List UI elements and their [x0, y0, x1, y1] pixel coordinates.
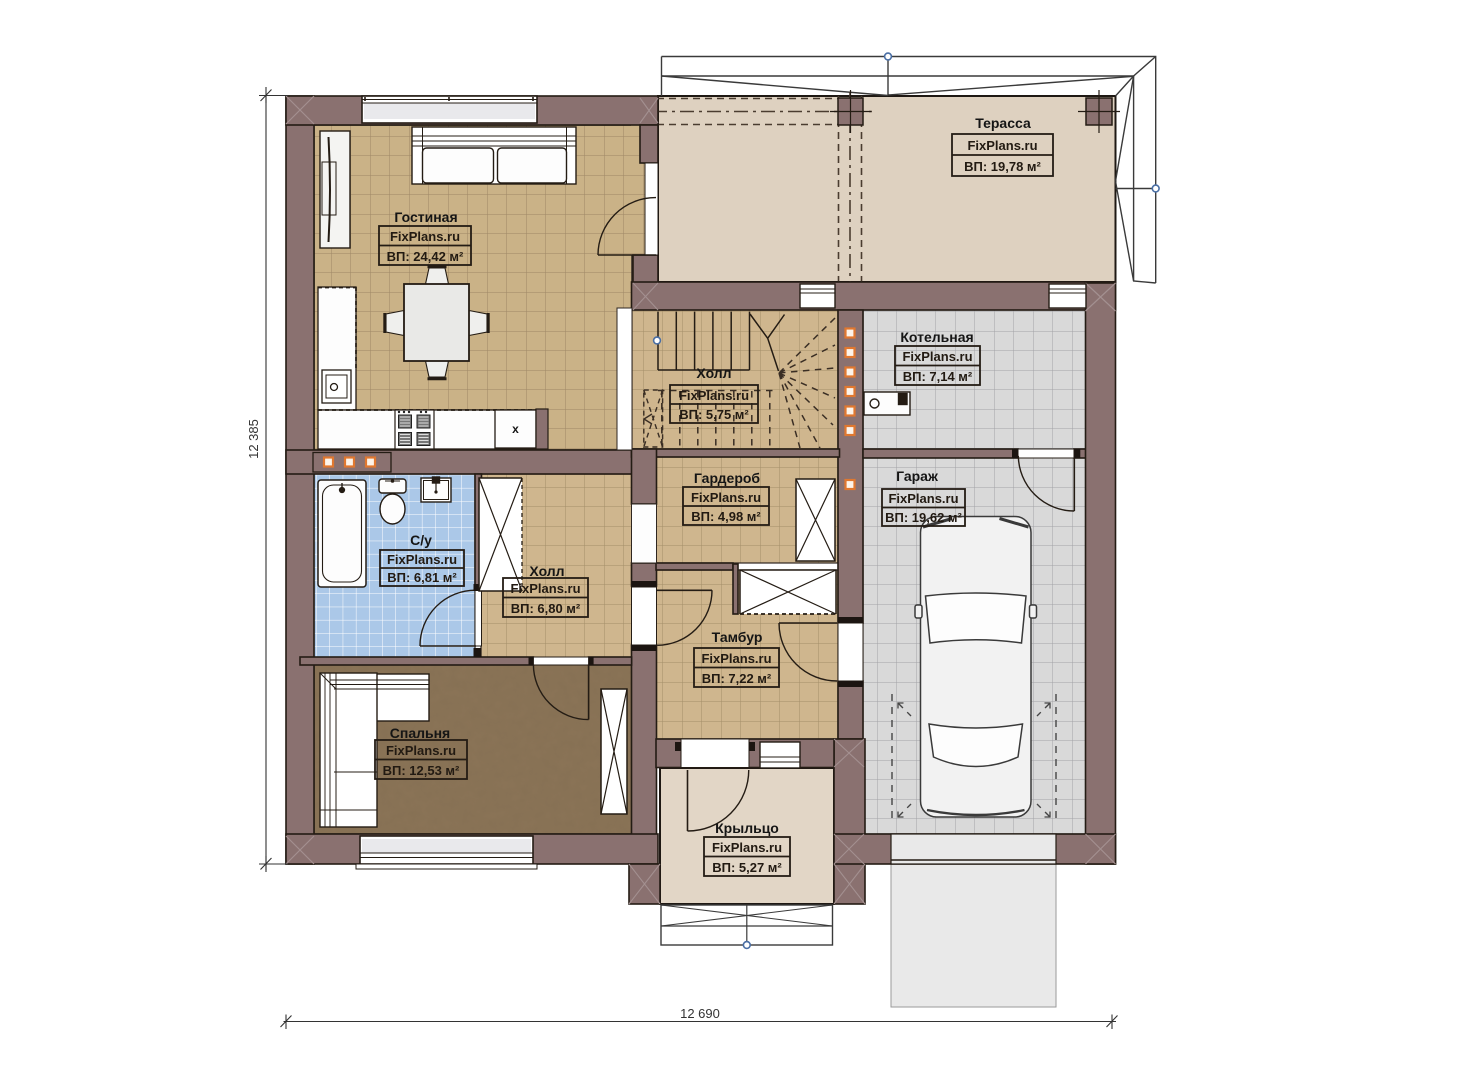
svg-text:ВП: 7,22 м²: ВП: 7,22 м²	[702, 671, 772, 686]
svg-text:x: x	[512, 422, 519, 436]
svg-text:12 690: 12 690	[680, 1006, 720, 1021]
svg-text:FixPlans.ru: FixPlans.ru	[902, 349, 972, 364]
svg-text:FixPlans.ru: FixPlans.ru	[510, 581, 580, 596]
svg-text:FixPlans.ru: FixPlans.ru	[701, 651, 771, 666]
svg-text:Спальня: Спальня	[390, 725, 450, 741]
svg-text:12 385: 12 385	[246, 419, 261, 459]
svg-text:Тамбур: Тамбур	[712, 629, 763, 645]
svg-text:С/у: С/у	[410, 532, 432, 548]
svg-text:Котельная: Котельная	[900, 329, 973, 345]
svg-text:FixPlans.ru: FixPlans.ru	[967, 138, 1037, 153]
svg-text:ВП: 12,53 м²: ВП: 12,53 м²	[383, 763, 460, 778]
svg-text:Холл: Холл	[529, 563, 564, 579]
svg-text:Холл: Холл	[696, 365, 731, 381]
svg-text:FixPlans.ru: FixPlans.ru	[888, 491, 958, 506]
svg-text:ВП: 5,27 м²: ВП: 5,27 м²	[712, 860, 782, 875]
svg-text:ВП: 4,98 м²: ВП: 4,98 м²	[691, 509, 761, 524]
svg-text:Гараж: Гараж	[896, 468, 939, 484]
svg-text:ВП: 6,80 м²: ВП: 6,80 м²	[511, 601, 581, 616]
svg-text:ВП: 6,81 м²: ВП: 6,81 м²	[387, 570, 457, 585]
svg-text:FixPlans.ru: FixPlans.ru	[691, 490, 761, 505]
svg-text:FixPlans.ru: FixPlans.ru	[679, 388, 749, 403]
svg-text:FixPlans.ru: FixPlans.ru	[712, 840, 782, 855]
svg-text:ВП: 7,14 м²: ВП: 7,14 м²	[903, 369, 973, 384]
svg-text:Крыльцо: Крыльцо	[715, 820, 779, 836]
svg-text:FixPlans.ru: FixPlans.ru	[387, 552, 457, 567]
svg-text:ВП: 24,42 м²: ВП: 24,42 м²	[387, 249, 464, 264]
svg-text:ВП: 19,78 м²: ВП: 19,78 м²	[964, 159, 1041, 174]
svg-text:ВП: 19,62 м²: ВП: 19,62 м²	[885, 510, 962, 525]
svg-text:Гостиная: Гостиная	[394, 209, 457, 225]
svg-text:FixPlans.ru: FixPlans.ru	[390, 229, 460, 244]
svg-text:Терасса: Терасса	[975, 115, 1031, 131]
svg-text:ВП: 5,75 м²: ВП: 5,75 м²	[679, 407, 749, 422]
svg-text:FixPlans.ru: FixPlans.ru	[386, 743, 456, 758]
svg-text:Гардероб: Гардероб	[694, 470, 761, 486]
